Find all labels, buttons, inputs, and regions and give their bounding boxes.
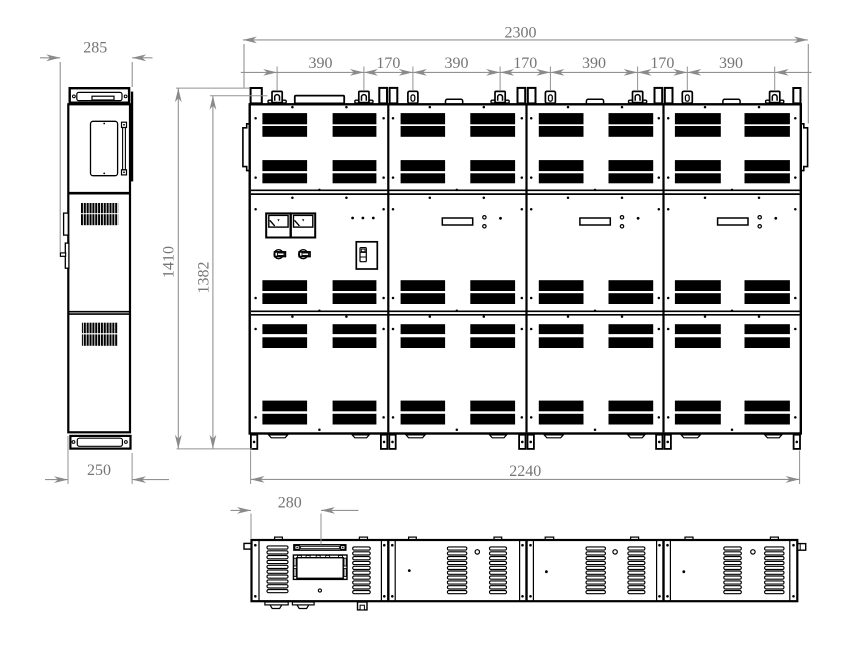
svg-text:390: 390 (309, 55, 333, 72)
svg-text:280: 280 (278, 495, 302, 512)
svg-text:170: 170 (376, 55, 400, 72)
svg-text:2240: 2240 (509, 463, 541, 480)
svg-text:250: 250 (87, 462, 111, 479)
svg-text:2300: 2300 (505, 24, 537, 41)
svg-text:390: 390 (445, 55, 469, 72)
svg-text:1382: 1382 (195, 262, 212, 294)
svg-text:390: 390 (719, 55, 743, 72)
svg-text:1410: 1410 (161, 246, 178, 278)
svg-text:170: 170 (513, 55, 537, 72)
svg-text:170: 170 (650, 55, 674, 72)
svg-text:390: 390 (582, 55, 606, 72)
svg-text:285: 285 (83, 40, 107, 57)
